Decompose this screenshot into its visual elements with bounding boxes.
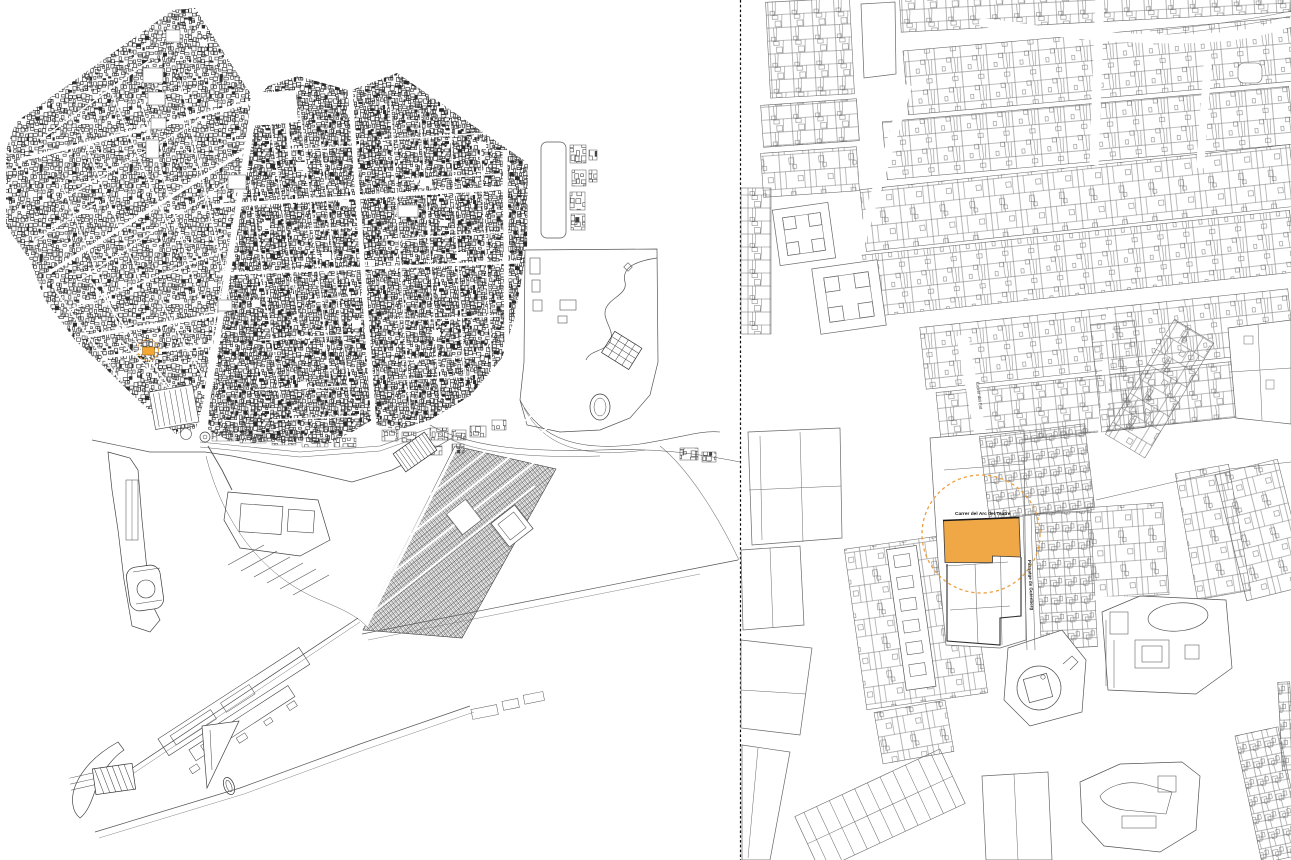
svg-text:Carrer del Arc del Teatre: Carrer del Arc del Teatre	[955, 511, 1011, 517]
